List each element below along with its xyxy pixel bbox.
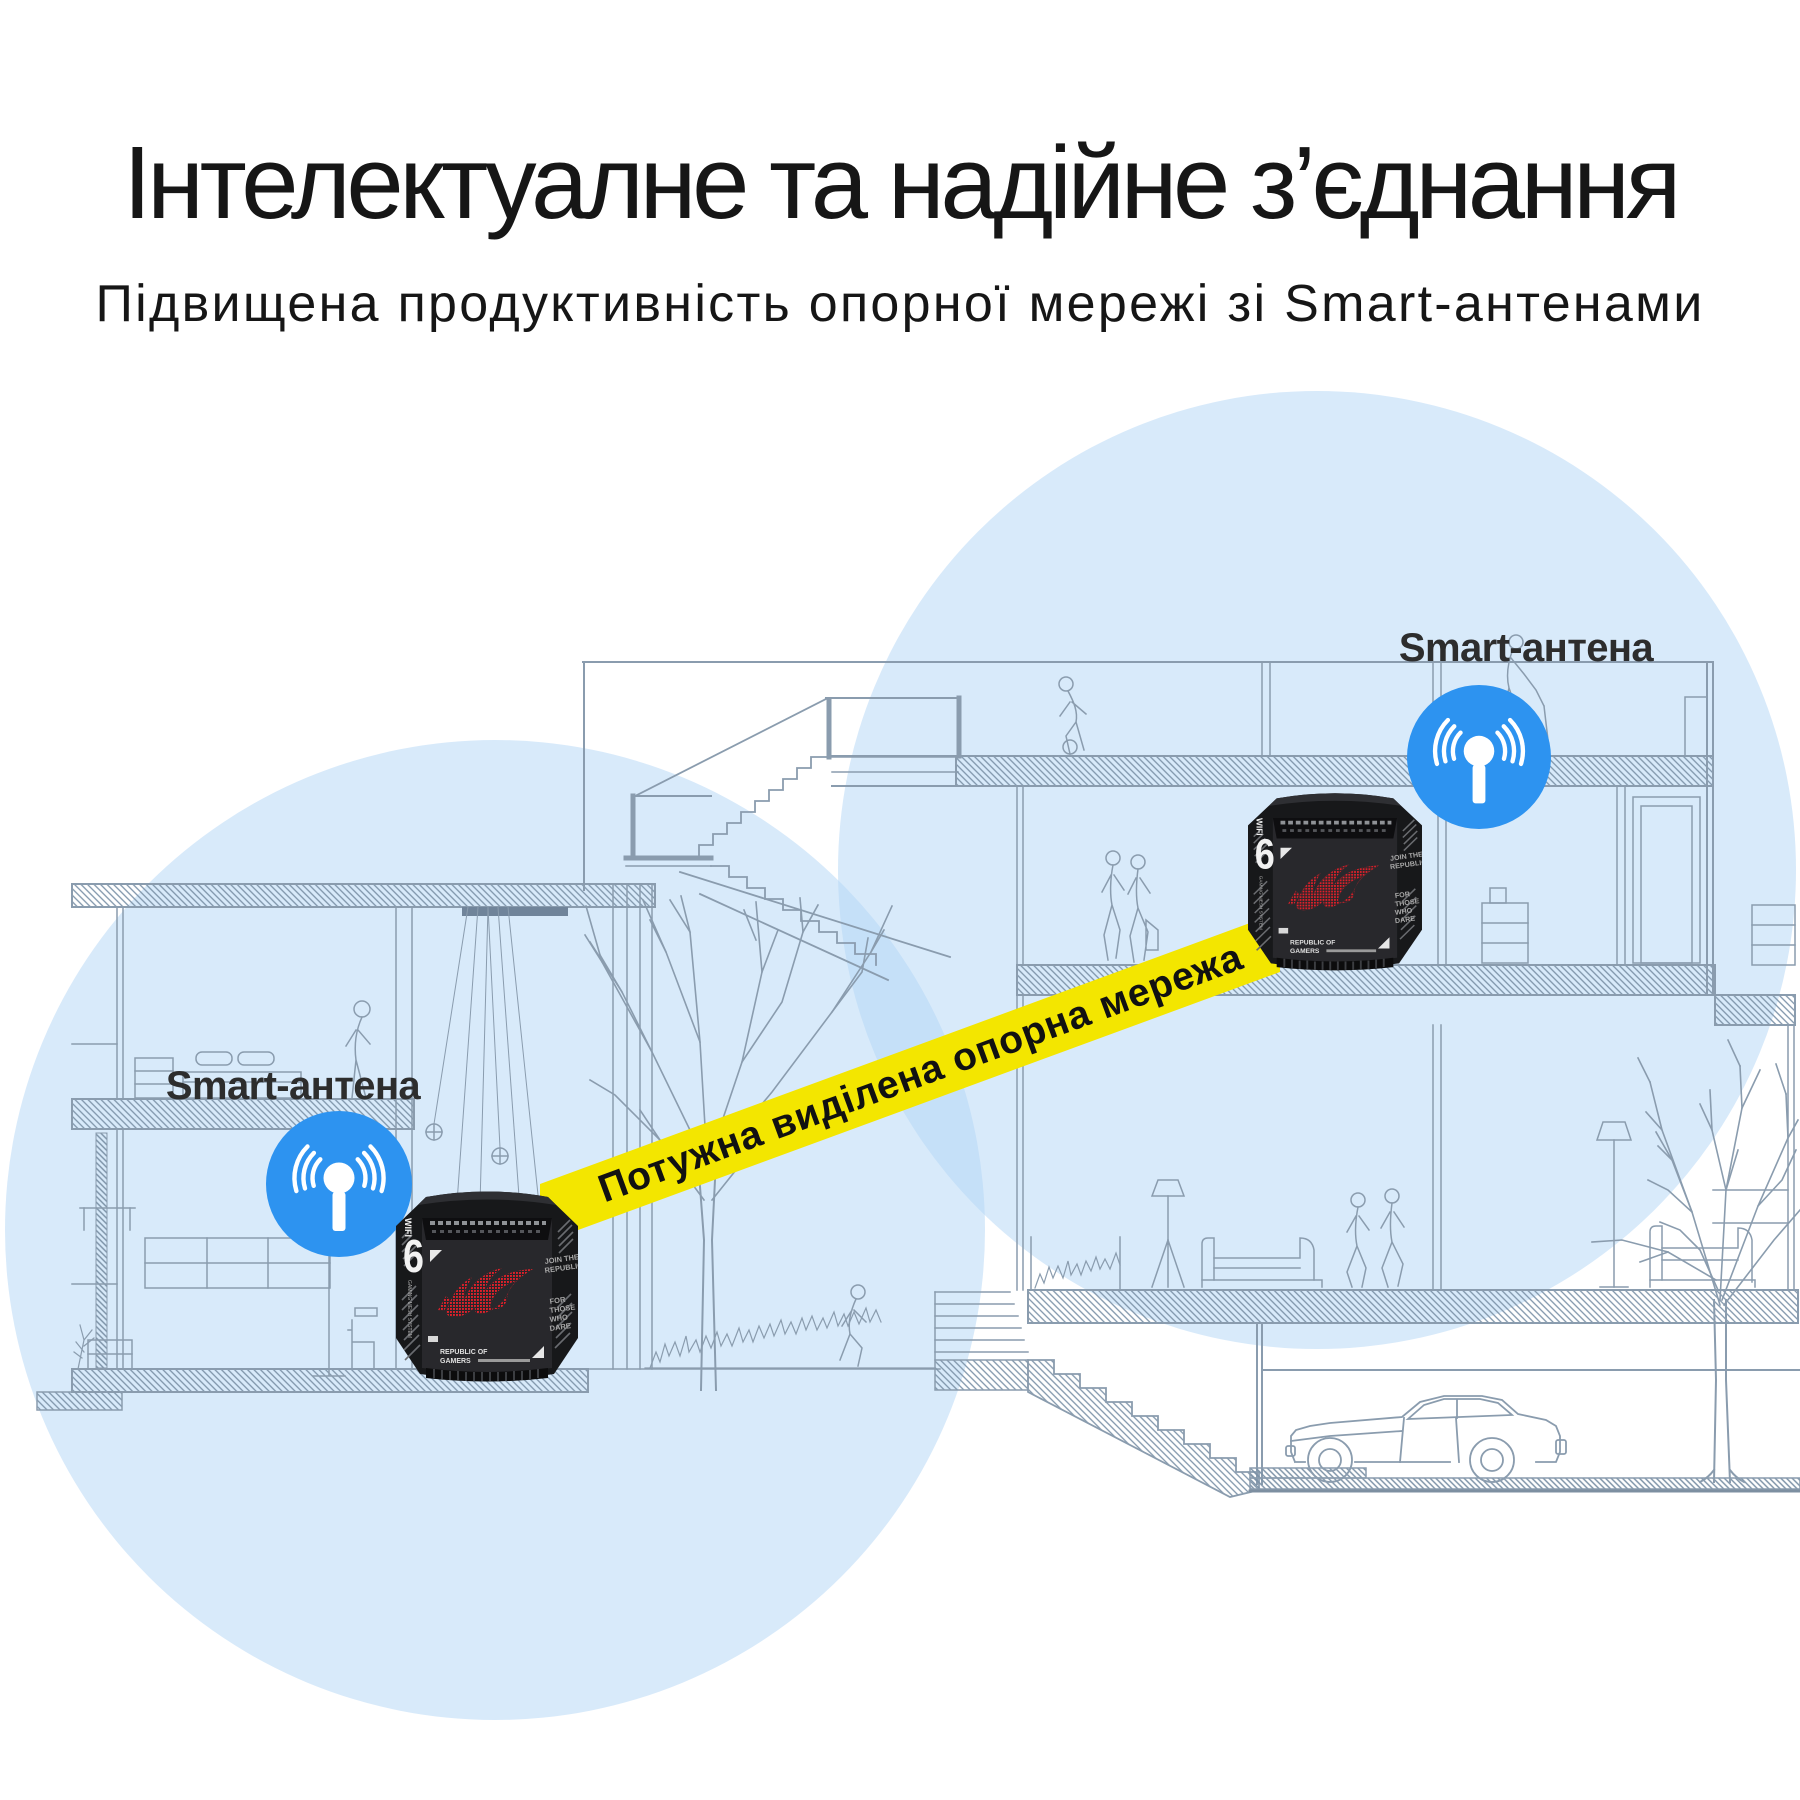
svg-text:Підвищена продуктивність опорн: Підвищена продуктивність опорної мережі … [95, 275, 1704, 333]
svg-text:Smart-антена: Smart-антена [1399, 626, 1655, 670]
svg-text:Інтелектуалне та надійне з’єдн: Інтелектуалне та надійне з’єднання [123, 125, 1677, 240]
svg-text:Smart-антена: Smart-антена [166, 1064, 422, 1108]
